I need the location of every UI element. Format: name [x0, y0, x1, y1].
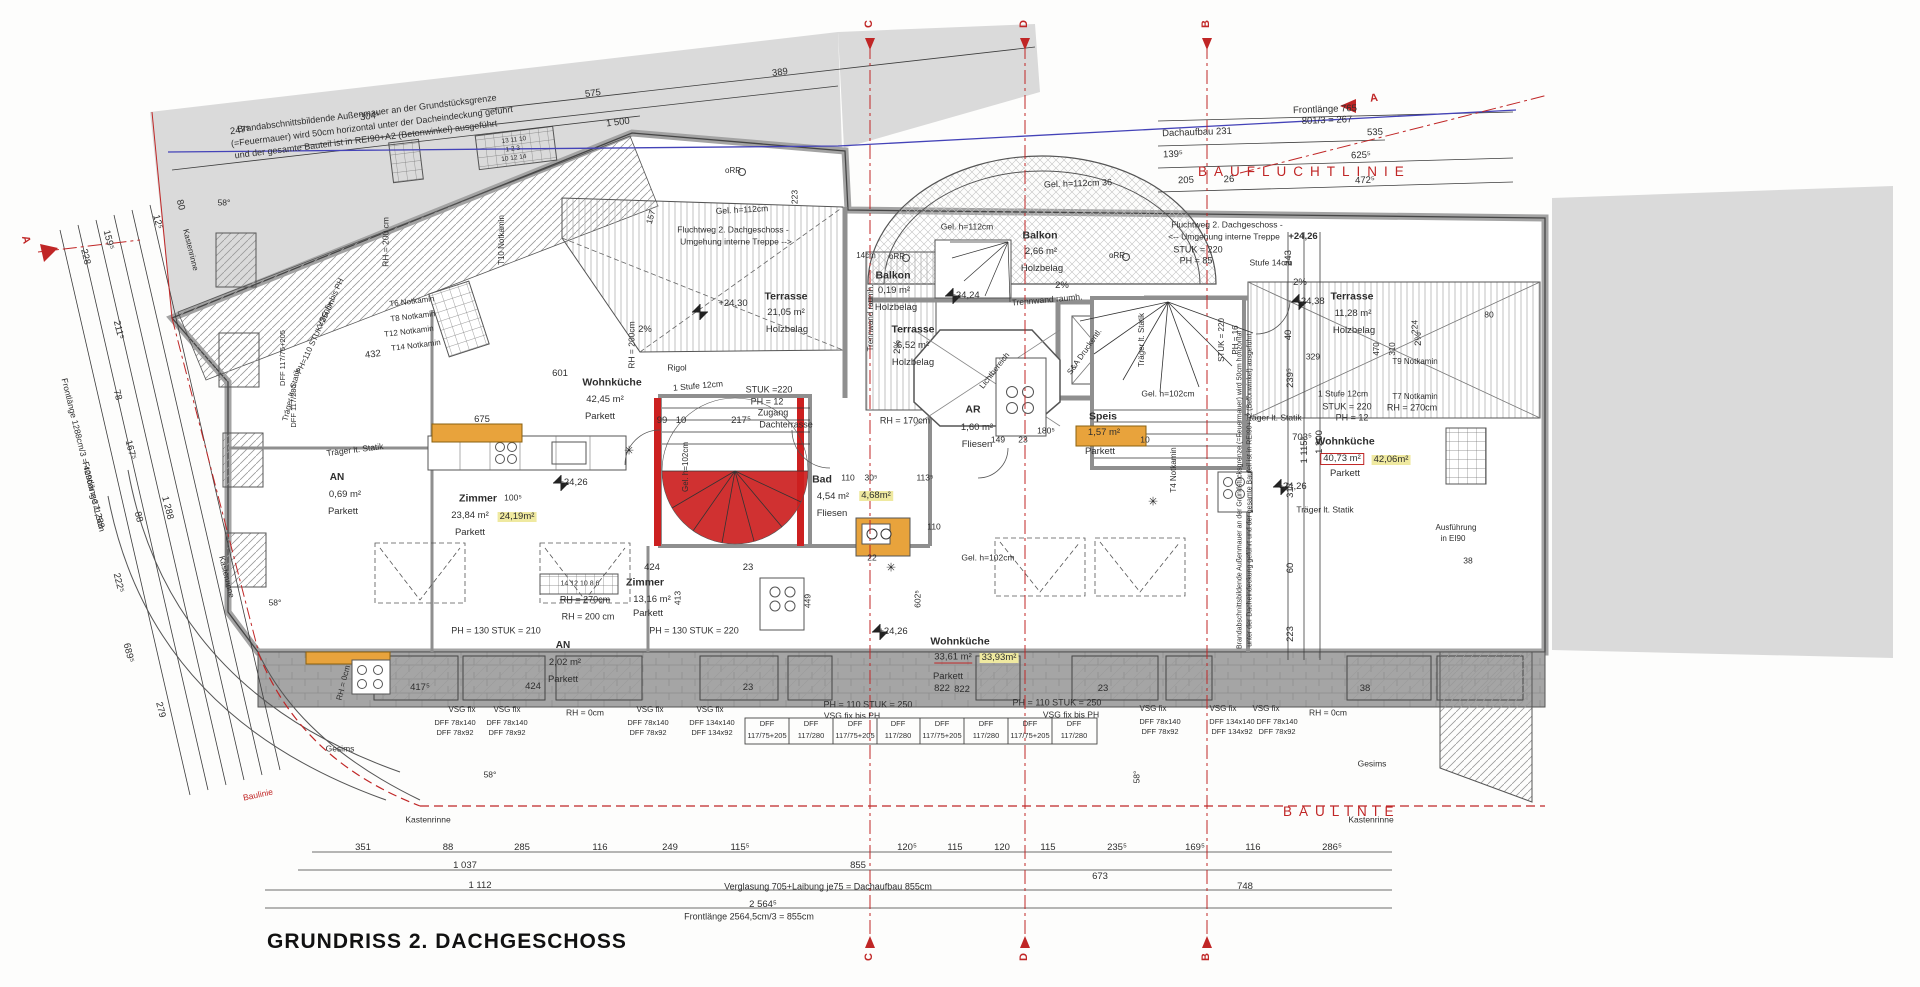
- plan-label: +24,24: [950, 291, 979, 301]
- room-label-an-1: AN: [330, 473, 344, 484]
- plan-label: 4,54 m²: [817, 492, 849, 502]
- plan-label: DFF 78x92: [436, 729, 473, 737]
- plan-label: DFF 117/75+205: [279, 330, 287, 386]
- plan-label: RH = 270cm: [1387, 403, 1437, 412]
- room-label-balkon-1: Balkon: [1022, 230, 1057, 241]
- plan-label: Holzbelag: [875, 303, 917, 313]
- plan-label: 217⁵: [731, 416, 751, 426]
- plan-label: Parkett: [548, 675, 578, 685]
- section-marker-a-right: A: [1369, 93, 1378, 105]
- plan-label: 40: [1284, 330, 1294, 341]
- plan-label: RH = 170cm: [880, 416, 930, 425]
- plan-label: DFF: [848, 720, 863, 728]
- plan-label: 223: [791, 190, 800, 204]
- plan-label: 413: [674, 591, 683, 605]
- plan-label: 117/280: [1061, 732, 1088, 740]
- plan-label: Gesims: [326, 745, 355, 754]
- plan-label: 116: [592, 843, 607, 853]
- plan-label: Fluchtweg 2. Dachgeschoss -: [677, 226, 789, 235]
- plan-label: Träger lt. Statik: [1296, 506, 1353, 515]
- plan-label: 1 115⁵: [1300, 436, 1310, 463]
- plan-label: 58°: [218, 199, 231, 208]
- plan-label: DFF 78x140: [627, 719, 668, 727]
- plan-label: 602⁵: [914, 590, 923, 608]
- plan-label: 243: [1284, 250, 1294, 266]
- plan-label: T4 Notkamin: [1170, 447, 1178, 492]
- plan-label: +24,26: [878, 627, 907, 637]
- floor-plan-page: GRUNDRISS 2. DACHGESCHOSS BAUFLUCHTLINIE…: [0, 0, 1920, 987]
- plan-label: DFF 78x92: [1141, 728, 1178, 736]
- plan-label: 601: [552, 369, 568, 379]
- plan-label: RH = 0cm: [566, 709, 604, 718]
- plan-label: Parkett: [455, 528, 485, 538]
- plan-label: unter der Dacheindeckung geführt und der…: [1246, 333, 1253, 646]
- room-label-balkon-2: Balkon: [875, 270, 910, 281]
- plan-label: Parkett: [328, 507, 358, 517]
- plan-label: PH = 12: [1336, 413, 1369, 422]
- plan-label: RH = 200 cm: [562, 612, 615, 621]
- plan-label: 23: [743, 683, 754, 693]
- plan-label: DFF 117/280: [290, 384, 298, 427]
- plan-label: 822: [934, 684, 950, 694]
- plan-label: 24,19m²: [498, 512, 537, 522]
- plan-label: Träger lt. Statik: [1138, 313, 1146, 367]
- plan-label: 38: [1463, 557, 1472, 566]
- plan-label: PH = 85: [1180, 256, 1213, 265]
- plan-label: 235⁵: [1107, 843, 1127, 853]
- plan-label: 14cm: [856, 252, 876, 260]
- plan-label: DFF: [935, 720, 950, 728]
- plan-label: DFF 78x140: [1139, 718, 1180, 726]
- room-label-zimmer-1: Zimmer: [459, 493, 497, 504]
- plan-label: VSG fix: [448, 706, 475, 714]
- plan-label: 2%: [1414, 332, 1424, 346]
- plan-label: VSG fix: [636, 706, 663, 714]
- plan-label: Parkett: [933, 672, 963, 682]
- plan-label: Fluchtweg 2. Dachgeschoss -: [1171, 221, 1283, 230]
- plan-label: PH = 110 STUK = 250: [1013, 698, 1102, 707]
- plan-label: DFF 134x140: [1209, 718, 1254, 726]
- section-marker-c-bottom: C: [864, 953, 876, 961]
- plan-label: 120: [994, 843, 1010, 853]
- plan-label: 675: [474, 415, 490, 425]
- plan-label: Zugang: [758, 408, 789, 417]
- plan-label: 110: [927, 523, 941, 532]
- plan-label: DFF: [804, 720, 819, 728]
- section-marker-d-top: D: [1019, 20, 1031, 28]
- plan-label: 10: [1140, 436, 1149, 445]
- room-label-wohnkueche-2: Wohnküche: [930, 636, 989, 647]
- plan-label: 2%: [1055, 281, 1069, 291]
- plan-label: Gel. h=102cm: [682, 442, 690, 492]
- plan-label: Ausführung: [1436, 524, 1477, 532]
- plan-label: 58°: [1133, 771, 1142, 784]
- plan-label: 575: [585, 88, 602, 100]
- plan-label: 351: [355, 843, 371, 853]
- plan-label: DFF 134x140: [689, 719, 734, 727]
- plan-label: Trennwand raumh.: [867, 285, 875, 352]
- section-marker-c-top: C: [864, 20, 876, 28]
- plan-label: 110: [841, 474, 855, 483]
- room-label-ar: AR: [965, 404, 980, 415]
- room-label-terrasse-2: Terrasse: [891, 324, 934, 335]
- plan-label: 23,84 m²: [451, 511, 489, 521]
- plan-label: Fliesen: [962, 440, 993, 450]
- plan-label: PH = 12: [751, 397, 784, 406]
- plan-label: 116: [1245, 843, 1260, 853]
- plan-label: DFF: [891, 720, 906, 728]
- plan-label: +24,26: [1288, 232, 1317, 242]
- room-label-zimmer-2: Zimmer: [626, 577, 664, 588]
- plan-label: DFF 78x140: [1256, 718, 1297, 726]
- plan-label: 432: [365, 349, 382, 361]
- plan-label: 149: [991, 436, 1005, 445]
- plan-label: DFF 78x140: [434, 719, 475, 727]
- plan-label: 317: [1286, 482, 1296, 498]
- plan-label: oRR: [889, 253, 905, 261]
- plan-label: Frontlänge 2564,5cm/3 = 855cm: [684, 912, 814, 921]
- plan-label: 4,68m²: [859, 491, 893, 501]
- room-label-terrasse-1: Terrasse: [764, 291, 807, 302]
- plan-label: 0,69 m²: [329, 490, 361, 500]
- plan-label: 1 037: [453, 861, 477, 871]
- plan-label: 30⁵: [865, 474, 878, 483]
- plan-label: 115: [947, 843, 962, 853]
- plan-label: STUK =220: [746, 385, 793, 394]
- plan-label: 23: [743, 563, 754, 573]
- plan-label: ✳: [1148, 496, 1158, 509]
- plan-label: Parkett: [1085, 447, 1115, 457]
- section-marker-b-top: B: [1201, 20, 1213, 28]
- room-label-terrasse-3: Terrasse: [1330, 291, 1373, 302]
- plan-label: T9 Notkamin: [1392, 358, 1437, 366]
- plan-label: 40,73 m²: [1320, 453, 1364, 465]
- plan-label: 224: [1411, 320, 1420, 334]
- plan-label: STUK = 220: [1322, 402, 1371, 411]
- plan-label: Holzbelag: [892, 358, 934, 368]
- plan-label: 60: [1286, 563, 1296, 574]
- room-label-speis: Speis: [1089, 411, 1117, 422]
- plan-label: RH = 270cm: [560, 595, 610, 604]
- plan-label: PH = 130 STUK = 220: [649, 626, 739, 635]
- plan-label: RH = 200cm: [628, 321, 637, 368]
- room-label-bad: Bad: [812, 474, 832, 485]
- plan-label: 42,45 m²: [586, 395, 624, 405]
- plan-label: 117/75+205: [922, 732, 961, 740]
- plan-label: 88: [443, 843, 454, 853]
- plan-label: 285: [514, 843, 530, 853]
- plan-label: Holzbelag: [1021, 264, 1063, 274]
- plan-label: Umgehung interne Treppe -->: [680, 238, 792, 247]
- plan-label: 58°: [269, 599, 282, 608]
- plan-label: 205: [1178, 176, 1194, 187]
- drawing-title: GRUNDRISS 2. DACHGESCHOSS: [267, 930, 627, 954]
- plan-label: 117/75+205: [747, 732, 786, 740]
- plan-label: 470: [1373, 342, 1381, 355]
- plan-label: 1 112: [468, 881, 491, 891]
- plan-label: 22: [867, 554, 876, 563]
- plan-label: 58°: [484, 771, 497, 780]
- plan-label: VSG fix: [1252, 705, 1279, 713]
- plan-label: 286⁵: [1322, 843, 1342, 853]
- plan-label: Rigol: [667, 364, 686, 373]
- plan-label: 2,66 m²: [1025, 247, 1057, 257]
- plan-label: in EI90: [1441, 535, 1466, 543]
- plan-label: 417⁵: [410, 683, 430, 693]
- plan-label: 6,52 m²: [897, 341, 929, 351]
- plan-label: 115⁵: [730, 843, 749, 853]
- plan-label: DFF 78x140: [486, 719, 527, 727]
- plan-label: DFF 134x92: [691, 729, 732, 737]
- plan-label: 748: [1237, 882, 1253, 892]
- plan-label: oRR: [725, 167, 741, 175]
- plan-label: 117/75+205: [1010, 732, 1049, 740]
- plan-label: Verglasung 705+Laibung je75 = Dachaufbau…: [724, 882, 932, 891]
- plan-label: 23: [1018, 436, 1027, 445]
- plan-label: Gesims: [1358, 760, 1387, 769]
- plan-label: 239⁵: [1286, 368, 1296, 388]
- plan-label: 673: [1092, 872, 1108, 882]
- plan-label: Fliesen: [817, 509, 848, 519]
- plan-label: 389: [772, 67, 789, 79]
- plan-label: STUK = 220: [1173, 245, 1222, 254]
- plan-label: <-- Umgehung interne Treppe: [1168, 233, 1280, 242]
- plan-label: 117/280: [973, 732, 1000, 740]
- plan-label: T7 Notkamin: [1392, 393, 1437, 401]
- plan-label: VSG fix: [696, 706, 723, 714]
- plan-label: 11,28 m²: [1335, 309, 1372, 319]
- plan-label: Holzbelag: [1333, 326, 1375, 336]
- plan-label: ✳: [886, 562, 896, 575]
- plan-label: Parkett: [1330, 469, 1360, 479]
- plan-label: 1 200: [1315, 430, 1325, 454]
- plan-label: VSG fix: [1139, 705, 1166, 713]
- plan-label: 80: [1484, 311, 1493, 320]
- plan-label: +24,38: [1295, 297, 1324, 307]
- plan-label: Brandabschnittsbildende Außenmauer an de…: [1236, 331, 1243, 649]
- plan-label: 139⁵: [1163, 150, 1183, 161]
- plan-label: DFF: [1023, 720, 1038, 728]
- plan-label: +24,30: [718, 299, 747, 309]
- plan-label: 113⁵: [916, 474, 933, 483]
- plan-label: 1,60 m²: [961, 423, 993, 433]
- plan-label: Gel. h=112cm: [941, 223, 994, 232]
- plan-label: 33,61 m²: [934, 653, 972, 664]
- plan-label: 2,02 m²: [549, 658, 581, 668]
- plan-label: 100⁵: [504, 494, 522, 503]
- plan-label: DFF 78x92: [1258, 728, 1295, 736]
- plan-label: 855: [850, 861, 866, 871]
- plan-label: oRR: [1109, 252, 1125, 260]
- plan-label: 223: [1286, 626, 1296, 642]
- plan-label: 99: [657, 416, 668, 426]
- plan-label: RH = 200 cm: [382, 217, 391, 267]
- room-label-an-2: AN: [556, 641, 570, 652]
- plan-label: DFF 78x92: [629, 729, 666, 737]
- plan-label: 329: [1306, 353, 1320, 362]
- plan-label: DFF: [979, 720, 994, 728]
- plan-label: Dachterrasse: [759, 420, 813, 429]
- plan-label: 449: [804, 594, 813, 608]
- plan-label: 169⁵: [1185, 843, 1205, 853]
- plan-label: 120⁵: [897, 843, 917, 853]
- plan-label: Kastenrinne: [405, 816, 450, 825]
- plan-label: STUK = 220: [1218, 318, 1226, 362]
- plan-label: VSG fix: [1209, 705, 1236, 713]
- plan-label: 180⁵: [1037, 427, 1055, 436]
- plan-label: 310: [1389, 342, 1397, 355]
- plan-label: 117/280: [798, 732, 825, 740]
- plan-label: 33,93m²: [980, 653, 1019, 663]
- plan-label: DFF 78x92: [488, 729, 525, 737]
- plan-label: 115: [1040, 843, 1055, 853]
- plan-label: 0,19 m²: [878, 286, 910, 296]
- plan-label: RH = 0cm: [1309, 709, 1347, 718]
- plan-label: 14 12 10 8 6: [561, 580, 600, 587]
- plan-label: Gel. h=102cm: [961, 554, 1014, 563]
- plan-label: 2 564⁵: [749, 900, 777, 910]
- plan-label: Gel. h=102cm: [1141, 390, 1194, 399]
- plan-label: 424: [644, 563, 660, 573]
- plan-label: 10: [676, 416, 687, 426]
- plan-label: 424: [525, 682, 541, 692]
- plan-label: 249: [662, 843, 678, 853]
- plan-label: 117/280: [885, 732, 912, 740]
- plan-label: 2%: [638, 325, 652, 335]
- plan-label: 801/3 = 267: [1302, 115, 1353, 127]
- plan-label: ✳: [624, 445, 634, 458]
- plan-label: 21,05 m²: [767, 308, 805, 318]
- plan-label: 12⁵: [150, 214, 163, 230]
- plan-label: 26: [1224, 175, 1235, 185]
- plan-label: PH = 130 STUK = 210: [451, 626, 541, 635]
- room-label-wohnkueche-1: Wohnküche: [582, 377, 641, 388]
- plan-label: Parkett: [585, 412, 615, 422]
- plan-label: 625⁵: [1351, 151, 1371, 162]
- plan-label: VSG fix: [493, 706, 520, 714]
- plan-label: DFF 134x92: [1211, 728, 1252, 736]
- plan-label: 42,06m²: [1372, 455, 1411, 465]
- plan-label: Parkett: [633, 609, 663, 619]
- plan-label: PH = 110 STUK = 250: [824, 700, 913, 709]
- plan-label: Kastenrinne: [1348, 816, 1393, 825]
- plan-label: 1 Stufe 12cm: [1318, 390, 1368, 399]
- section-marker-d-bottom: D: [1019, 953, 1031, 961]
- plan-label: 23: [1098, 684, 1109, 694]
- plan-label: T10 Notkamin: [498, 215, 506, 265]
- plan-label: 472⁵: [1355, 176, 1375, 187]
- plan-label: DFF: [1067, 720, 1082, 728]
- plan-label: 117/75+205: [835, 732, 874, 740]
- plan-label: 38: [1360, 684, 1371, 694]
- section-marker-b-bottom: B: [1201, 953, 1213, 961]
- plan-label: 13,16 m²: [633, 595, 671, 605]
- plan-label: 535: [1367, 128, 1383, 139]
- plan-label: 1,57 m²: [1088, 428, 1120, 438]
- plan-label: DFF: [760, 720, 775, 728]
- plan-label: 822: [954, 685, 970, 695]
- plan-label: Holzbelag: [766, 325, 808, 335]
- plan-label: 2%: [1293, 278, 1307, 288]
- plan-label: +24,26: [558, 478, 587, 488]
